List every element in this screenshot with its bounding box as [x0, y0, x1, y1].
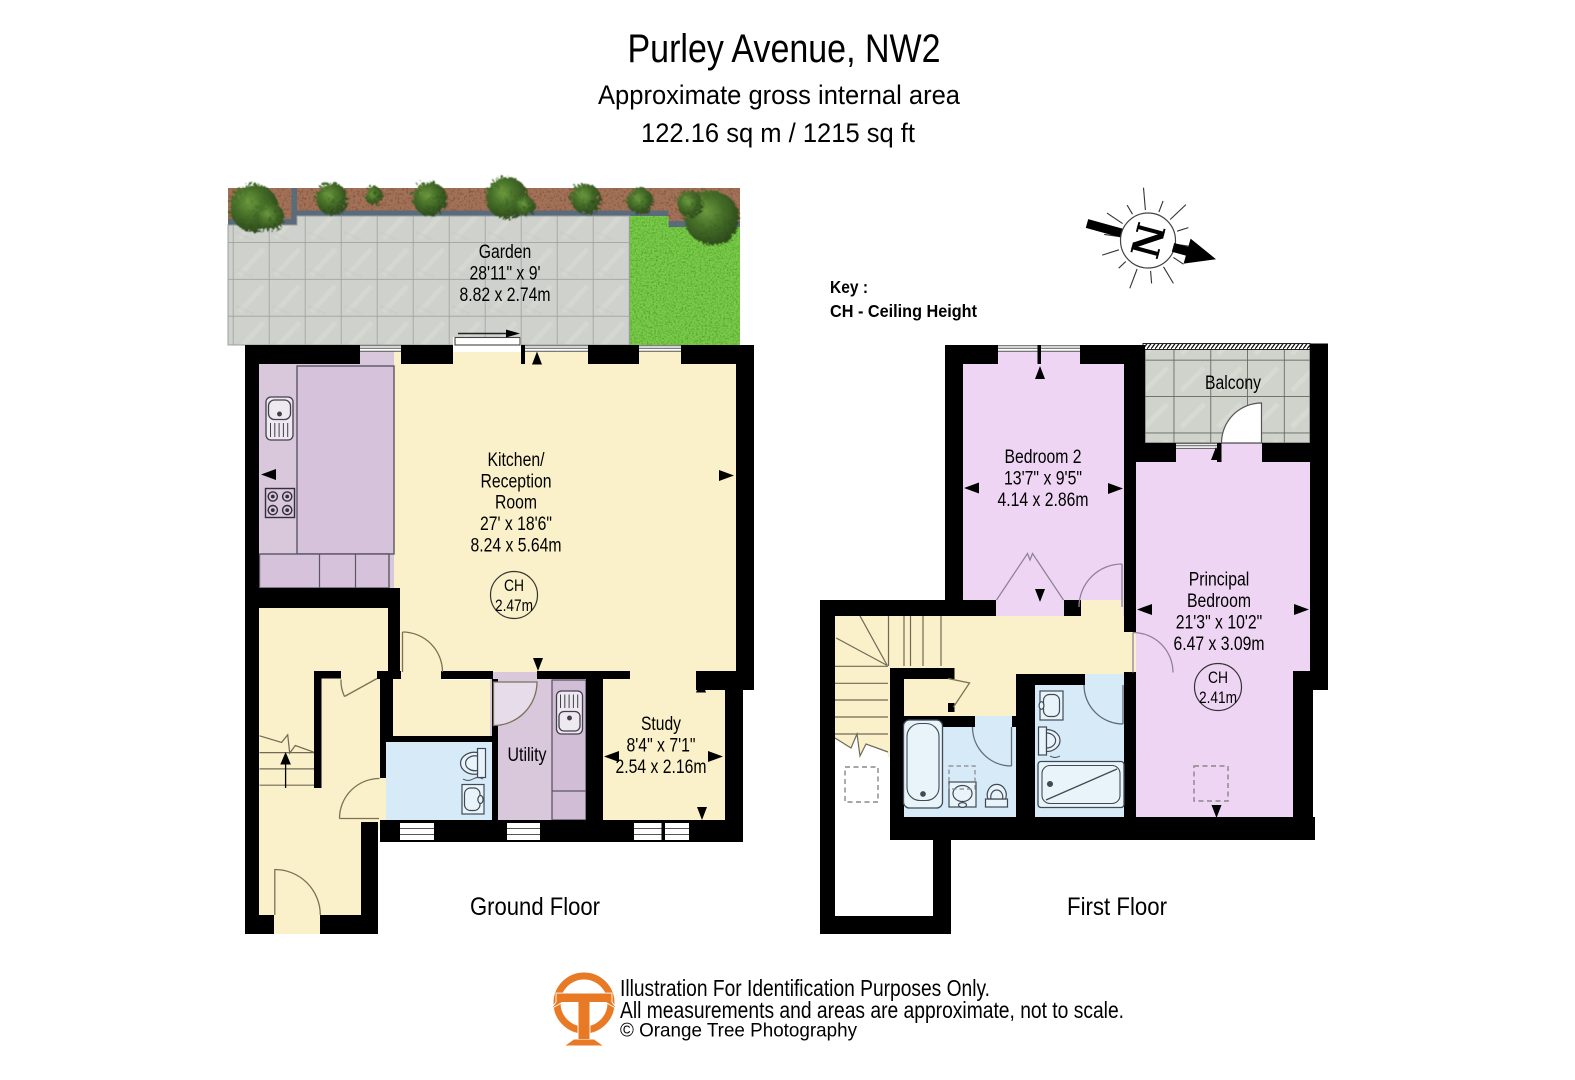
- svg-text:Approximate gross internal are: Approximate gross internal area: [598, 80, 961, 110]
- svg-text:8.82 x 2.74m: 8.82 x 2.74m: [460, 285, 551, 306]
- svg-text:Reception: Reception: [481, 471, 552, 492]
- svg-text:Kitchen/: Kitchen/: [488, 450, 546, 471]
- svg-text:27' x 18'6": 27' x 18'6": [480, 514, 552, 535]
- svg-text:21'3" x 10'2": 21'3" x 10'2": [1176, 612, 1263, 633]
- svg-text:8.24 x 5.64m: 8.24 x 5.64m: [471, 535, 562, 556]
- svg-text:6.47 x 3.09m: 6.47 x 3.09m: [1174, 634, 1265, 655]
- svg-text:© Orange Tree Photography: © Orange Tree Photography: [620, 1020, 857, 1042]
- svg-text:2.41m: 2.41m: [1199, 689, 1237, 707]
- svg-text:8'4" x 7'1": 8'4" x 7'1": [627, 736, 696, 757]
- svg-text:Room: Room: [495, 493, 537, 514]
- svg-text:CH: CH: [504, 577, 524, 595]
- svg-text:4.14 x 2.86m: 4.14 x 2.86m: [998, 490, 1089, 511]
- svg-text:13'7" x 9'5": 13'7" x 9'5": [1004, 469, 1082, 490]
- svg-text:2.54 x 2.16m: 2.54 x 2.16m: [616, 757, 707, 778]
- svg-text:28'11" x 9': 28'11" x 9': [470, 264, 541, 285]
- svg-text:CH: CH: [1208, 669, 1228, 687]
- svg-text:Balcony: Balcony: [1205, 373, 1261, 394]
- svg-text:2.47m: 2.47m: [495, 597, 533, 615]
- svg-text:First Floor: First Floor: [1067, 893, 1167, 921]
- svg-text:Purley Avenue, NW2: Purley Avenue, NW2: [628, 27, 941, 71]
- svg-text:Study: Study: [641, 714, 681, 735]
- svg-text:Ground Floor: Ground Floor: [470, 893, 600, 921]
- svg-text:Bedroom 2: Bedroom 2: [1005, 447, 1082, 468]
- svg-text:122.16 sq m / 1215 sq ft: 122.16 sq m / 1215 sq ft: [641, 118, 915, 148]
- svg-text:Key :: Key :: [830, 277, 868, 297]
- svg-text:Bedroom: Bedroom: [1187, 591, 1251, 612]
- svg-text:Principal: Principal: [1189, 570, 1250, 591]
- svg-text:Garden: Garden: [479, 242, 532, 263]
- svg-text:CH - Ceiling Height: CH - Ceiling Height: [830, 301, 977, 321]
- svg-text:Utility: Utility: [508, 745, 547, 766]
